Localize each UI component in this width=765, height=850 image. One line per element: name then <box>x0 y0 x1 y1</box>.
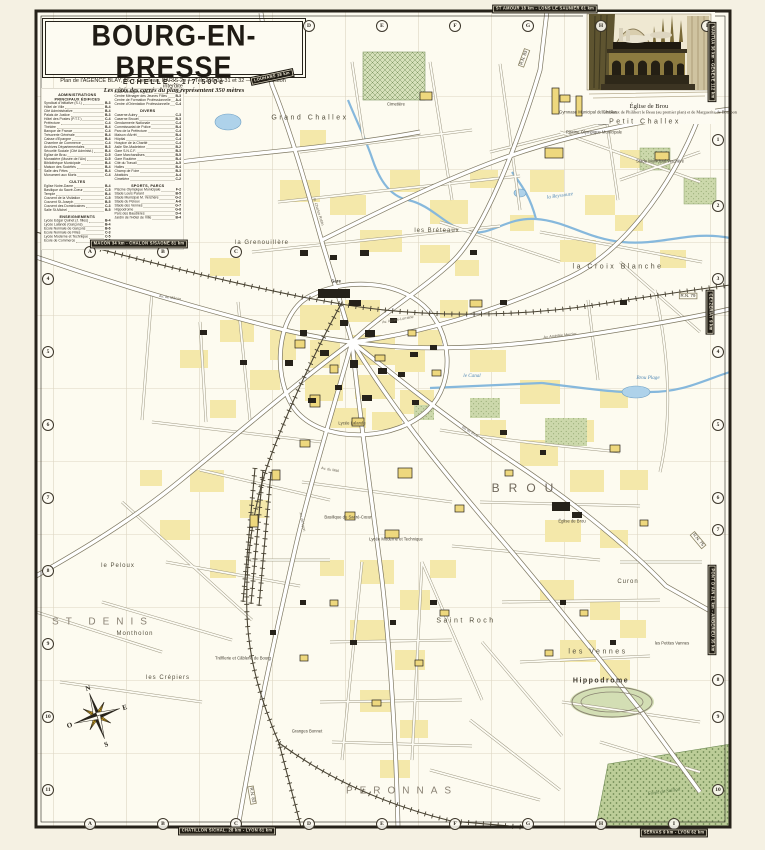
grid-mark-B: B <box>157 818 169 830</box>
map-label: la Croix Blanche <box>573 264 664 271</box>
grid-mark-G: G <box>522 818 534 830</box>
map-label: PERONNAS <box>346 786 458 797</box>
legend-item-leader <box>77 168 104 169</box>
road-distance-badge: NANTUA 36 km - GENEVE 112 km <box>709 23 716 101</box>
legend-item-ref: C-4 <box>175 103 181 107</box>
road-distance-badge: CHATILLON S/CHAL. 28 km - LYON 61 km <box>179 828 275 835</box>
grid-mark-4: 4 <box>42 273 54 285</box>
legend-item-leader <box>82 120 103 121</box>
legend-item: Monument aux MortsC-4 <box>44 174 111 178</box>
grid-mark-9: 9 <box>712 711 724 723</box>
map-label: le Canal <box>463 373 480 378</box>
compass-rose: N E S O <box>62 681 132 751</box>
map-label: Cimetière <box>387 103 405 107</box>
map-label: Piscine Olympique Municipale <box>566 131 622 135</box>
legend-item-ref: C-2 <box>175 177 181 181</box>
grid-mark-H: H <box>595 20 607 32</box>
grid-mark-5: 5 <box>42 346 54 358</box>
legend-item-leader <box>148 144 174 145</box>
map-label: Curon <box>617 579 638 585</box>
grid-mark-5: 5 <box>712 419 724 431</box>
grid-mark-D: D <box>303 818 315 830</box>
legend-item-leader <box>129 176 174 177</box>
legend-item: Centre d'Orientation ProfessionnelleC-4 <box>115 103 182 107</box>
map-label: Petit Challex <box>609 119 681 126</box>
legend-col-2: École Ménagère AgricoleD-2Centre Ménager… <box>115 91 182 244</box>
legend-box: ADMINISTRATIONSPRINCIPAUX ÉDIFICESSyndic… <box>41 88 184 250</box>
legend-item-leader <box>172 101 175 102</box>
map-label: R.N. 79 <box>679 293 697 299</box>
grid-mark-F: F <box>449 818 461 830</box>
legend-item-leader <box>146 156 175 157</box>
grid-mark-F: F <box>449 20 461 32</box>
map-label: Lycée Moderne et Technique <box>369 538 423 542</box>
legend-item-leader <box>160 199 175 200</box>
grid-mark-G: G <box>522 20 534 32</box>
legend-item-leader <box>152 128 175 129</box>
legend-item-ref: B-5 <box>105 208 111 212</box>
legend-item-leader <box>89 238 104 239</box>
legend-item-name: Centre d'Orientation Professionnelle <box>115 103 170 107</box>
grid-mark-2: 2 <box>712 200 724 212</box>
page-title: BOURG-EN-BRESSE <box>46 21 302 84</box>
legend-item-leader <box>84 226 104 227</box>
grid-mark-E: E <box>376 818 388 830</box>
legend-item-leader <box>82 144 104 145</box>
legend-item-leader <box>148 132 175 133</box>
map-label: Basilique du Sacré-Cœur <box>324 516 371 520</box>
map-label: les Vennes <box>568 649 627 656</box>
compass-s: S <box>103 740 109 749</box>
map-label: Brou Plage <box>636 375 659 380</box>
map-label: le Peloux <box>101 563 135 569</box>
compass-o: O <box>66 721 74 730</box>
legend-item: CimetièreC-2 <box>115 177 182 181</box>
legend-item-leader <box>137 160 174 161</box>
grid-mark-6: 6 <box>712 492 724 504</box>
map-label: Gymnase Municipal de Challes <box>559 111 617 115</box>
legend-item-name: Salle St-Michel <box>44 208 67 212</box>
legend-item-name: Cimetière <box>115 177 130 181</box>
grid-mark-8: 8 <box>42 565 54 577</box>
legend-item-leader <box>68 211 104 212</box>
grid-mark-10: 10 <box>712 784 724 796</box>
map-label: BROU <box>492 481 563 495</box>
legend-item-leader <box>81 164 104 165</box>
legend-item-leader <box>151 124 174 125</box>
grid-mark-B: B <box>157 246 169 258</box>
map-label: Gare <box>331 280 341 284</box>
compass-e: E <box>121 703 128 712</box>
legend-item: Salle St-MichelB-5 <box>44 208 111 212</box>
legend-item-leader <box>143 207 174 208</box>
grid-mark-3: 3 <box>712 273 724 285</box>
grid-mark-A: A <box>84 246 96 258</box>
map-label: Granges Bonnet <box>292 730 323 734</box>
inset-caption-title: Église de Brou <box>583 103 715 110</box>
legend-item-leader <box>152 219 174 220</box>
map-label: Église de Brou <box>558 520 585 524</box>
grid-mark-1: 1 <box>712 134 724 146</box>
legend-item-leader <box>77 176 104 177</box>
grid-mark-10: 10 <box>42 711 54 723</box>
map-label: Stade Municipal Verchère <box>636 160 684 164</box>
legend-item-ref: B-4 <box>175 216 181 220</box>
legend-item-leader <box>81 199 104 200</box>
legend-item-leader <box>87 160 104 161</box>
map-label: les Bréteaux <box>414 228 459 234</box>
legend-item-leader <box>84 191 104 192</box>
legend-item-leader <box>161 191 174 192</box>
grid-mark-7: 7 <box>712 524 724 536</box>
legend-item-leader <box>73 132 104 133</box>
legend-item-leader <box>138 164 175 165</box>
legend-item-leader <box>141 203 175 204</box>
legend-item-leader <box>74 112 104 113</box>
map-label: Hippodrome <box>573 678 629 685</box>
grid-mark-E: E <box>376 20 388 32</box>
legend-item: Jardin de l'Hôtel de VilleB-4 <box>115 216 182 220</box>
legend-item-leader <box>138 136 175 137</box>
map-label: ST DENIS <box>52 617 154 628</box>
title-box: BOURG-EN-BRESSE ÉCHELLE : 1/7.500e Les c… <box>45 21 303 75</box>
grid-mark-6: 6 <box>42 419 54 431</box>
grid-mark-C: C <box>230 246 242 258</box>
legend-item-leader <box>94 152 104 153</box>
map-label: Montholon <box>116 631 153 637</box>
road-distance-badge: MACON 34 km - CHALON S/SAONE 81 km <box>91 241 187 248</box>
legend-item-ref: C-4 <box>105 174 111 178</box>
map-label: Saint Roch <box>436 618 495 625</box>
road-distance-badge: CEYZERIAT 9 km <box>707 291 714 334</box>
legend-item-name: Jardin de l'Hôtel de Ville <box>115 216 152 220</box>
grid-mark-11: 11 <box>42 784 54 796</box>
legend-col-1: ADMINISTRATIONSPRINCIPAUX ÉDIFICESSyndic… <box>44 91 111 244</box>
grid-mark-9: 9 <box>42 638 54 650</box>
legend-item-leader <box>83 104 104 105</box>
grid-mark-4: 4 <box>712 346 724 358</box>
legend-item-name: Monument aux Morts <box>44 174 76 178</box>
map-label: les Petites Vannes <box>655 642 689 646</box>
map-label: Tréfilerie et Câblerie de Bourg <box>215 657 271 661</box>
road-distance-badge: ST AMOUR 18 km - LONS LE SAUNIER 61 km <box>493 6 597 13</box>
legend-item-leader <box>61 124 104 125</box>
road-distance-badge: SERVAS 9 km - LYON 62 km <box>641 830 707 837</box>
grid-mark-7: 7 <box>42 492 54 504</box>
road-distance-badge: PONT D'AIN 21 km - AMBERIEU 35 km <box>709 566 716 654</box>
grid-mark-I: I <box>668 818 680 830</box>
legend-item-name: École de Commerce <box>44 239 75 243</box>
map-sheet: BOURG-EN-BRESSE ÉCHELLE : 1/7.500e Les c… <box>0 0 765 850</box>
legend-item-leader <box>130 180 174 181</box>
legend-item-leader <box>171 105 175 106</box>
map-label: les Crépiers <box>146 675 190 681</box>
compass-n: N <box>84 684 91 693</box>
legend-item-leader <box>89 222 104 223</box>
map-label: Lycée Lalande <box>338 422 365 426</box>
map-label: Grand Challex <box>271 115 348 122</box>
legend-item-leader <box>138 116 174 117</box>
grid-mark-H: H <box>595 818 607 830</box>
legend-item-leader <box>86 230 104 231</box>
legend-item-leader <box>140 172 174 173</box>
grid-mark-A: A <box>84 818 96 830</box>
legend-item-leader <box>86 207 104 208</box>
grid-mark-D: D <box>303 20 315 32</box>
legend-item-leader <box>76 136 104 137</box>
grid-mark-8: 8 <box>712 674 724 686</box>
map-label: la Grenouillère <box>235 240 289 246</box>
legend-item-leader <box>146 148 174 149</box>
